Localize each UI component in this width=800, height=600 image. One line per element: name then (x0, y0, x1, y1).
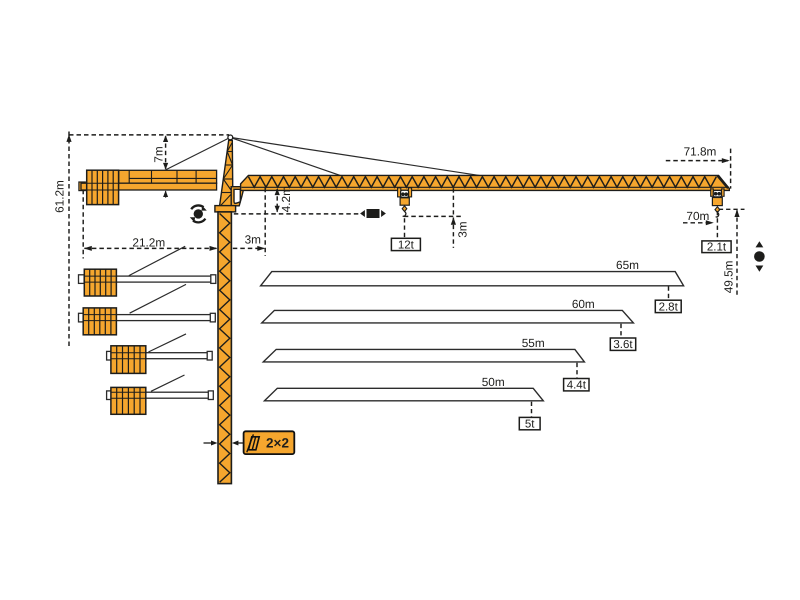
svg-text:3m: 3m (456, 221, 470, 238)
svg-text:5t: 5t (525, 419, 535, 431)
svg-text:61.2m: 61.2m (52, 180, 66, 213)
svg-text:7m: 7m (152, 146, 166, 163)
svg-text:3.6t: 3.6t (613, 339, 633, 351)
svg-text:2×2: 2×2 (266, 436, 289, 451)
svg-text:4.2m: 4.2m (279, 186, 293, 212)
svg-text:2.1t: 2.1t (707, 242, 727, 254)
svg-text:4.4t: 4.4t (567, 380, 587, 392)
svg-text:12t: 12t (398, 240, 415, 252)
svg-text:71.8m: 71.8m (684, 145, 717, 159)
svg-text:3m: 3m (245, 232, 262, 246)
svg-text:2.8t: 2.8t (659, 301, 679, 313)
svg-text:60m: 60m (572, 297, 595, 311)
svg-text:21.2m: 21.2m (132, 235, 165, 249)
svg-text:55m: 55m (522, 336, 545, 350)
svg-text:50m: 50m (482, 375, 505, 389)
svg-text:49.5m: 49.5m (721, 260, 735, 293)
svg-text:65m: 65m (616, 258, 639, 272)
